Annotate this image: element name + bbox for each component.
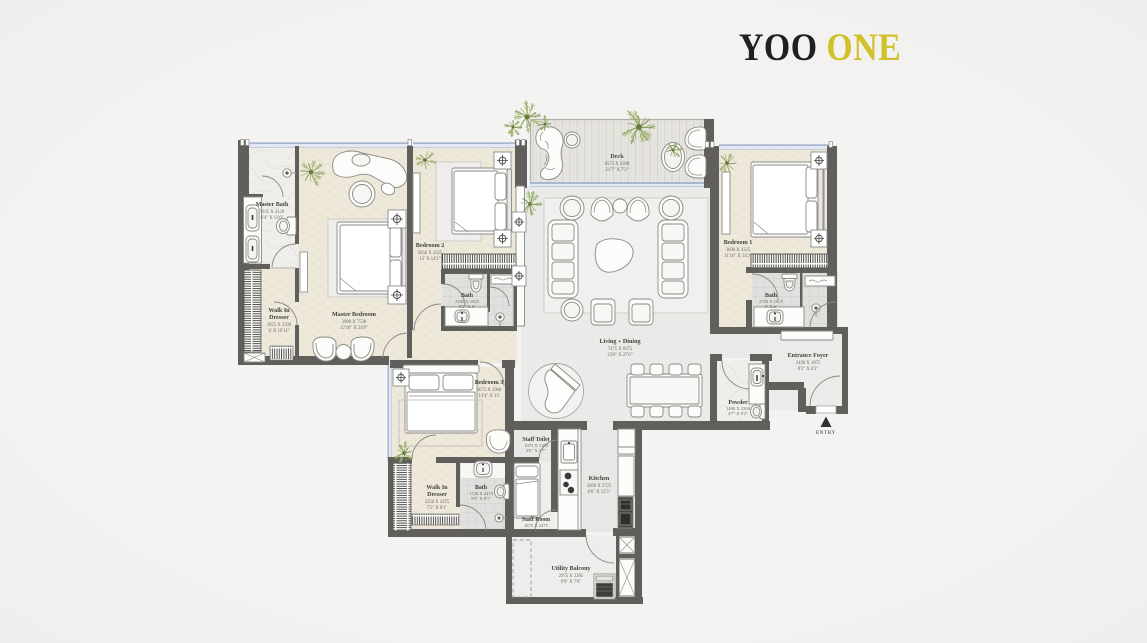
svg-text:ENTRY: ENTRY xyxy=(816,431,836,436)
svg-text:2975 X 2285: 2975 X 2285 xyxy=(559,574,584,579)
svg-text:12' X 14'2": 12' X 14'2" xyxy=(419,257,440,262)
svg-text:3650 X 4325: 3650 X 4325 xyxy=(418,251,443,256)
svg-text:YOO ONE: YOO ONE xyxy=(739,25,901,69)
svg-text:1825 X 3330: 1825 X 3330 xyxy=(267,323,292,328)
svg-text:Dresser: Dresser xyxy=(269,315,289,321)
svg-text:Living + Dining: Living + Dining xyxy=(599,339,640,345)
svg-text:11'10" X 14'2": 11'10" X 14'2" xyxy=(724,254,752,259)
svg-text:Entrance Foyer: Entrance Foyer xyxy=(788,353,829,359)
svg-text:3600 X 4325: 3600 X 4325 xyxy=(726,248,751,253)
svg-text:Bedroom 1: Bedroom 1 xyxy=(724,240,753,246)
svg-text:8'6" X 12'3": 8'6" X 12'3" xyxy=(588,490,611,495)
svg-text:8'2" X 6'2": 8'2" X 6'2" xyxy=(798,367,819,372)
svg-text:23'6" X 27'6": 23'6" X 27'6" xyxy=(607,353,632,358)
svg-text:Walk In: Walk In xyxy=(268,308,290,314)
svg-text:6'2" X 8'1": 6'2" X 8'1" xyxy=(526,528,546,533)
svg-text:9' X 6': 9' X 6' xyxy=(765,304,777,309)
svg-text:4075 X 3960: 4075 X 3960 xyxy=(477,388,502,393)
svg-text:2250 X 2475: 2250 X 2475 xyxy=(425,500,450,505)
svg-text:13'4" X 13': 13'4" X 13' xyxy=(478,394,499,399)
svg-text:7'5" X 8'1": 7'5" X 8'1" xyxy=(427,506,448,511)
svg-text:8'2" X 6': 8'2" X 6' xyxy=(459,304,475,309)
svg-text:3'6" X 3'7": 3'6" X 3'7" xyxy=(526,448,546,453)
svg-text:6'4" X 13'6": 6'4" X 13'6" xyxy=(261,216,284,221)
svg-text:2490 X 1875: 2490 X 1875 xyxy=(796,361,821,366)
svg-text:2600 X 3725: 2600 X 3725 xyxy=(587,484,612,489)
svg-text:Master Bedroom: Master Bedroom xyxy=(332,312,376,318)
svg-text:Master Bath: Master Bath xyxy=(256,202,289,208)
svg-text:6' X 10'11": 6' X 10'11" xyxy=(269,329,290,334)
svg-text:Bedroom 2: Bedroom 2 xyxy=(416,243,445,249)
svg-text:5'8" X 8'1": 5'8" X 8'1" xyxy=(471,496,491,501)
svg-text:12'10" X 24'9": 12'10" X 24'9" xyxy=(340,326,368,331)
svg-text:9'9" X 7'6": 9'9" X 7'6" xyxy=(561,580,582,585)
svg-text:Walk In: Walk In xyxy=(426,485,448,491)
svg-text:Kitchen: Kitchen xyxy=(589,476,610,482)
svg-text:7475 X 8375: 7475 X 8375 xyxy=(608,347,633,352)
svg-text:Deck: Deck xyxy=(610,154,624,160)
svg-text:4'7" X 8'2": 4'7" X 8'2" xyxy=(728,411,748,416)
svg-text:Utility Balcony: Utility Balcony xyxy=(551,566,590,572)
svg-text:Dresser: Dresser xyxy=(427,492,447,498)
svg-text:21'7" X 7'3": 21'7" X 7'3" xyxy=(606,168,629,173)
svg-text:6575 X 2200: 6575 X 2200 xyxy=(605,162,630,167)
svg-text:3900 X 7530: 3900 X 7530 xyxy=(342,320,367,325)
svg-text:1935 X 4120: 1935 X 4120 xyxy=(260,210,285,215)
svg-text:Bedroom 3: Bedroom 3 xyxy=(475,380,504,386)
